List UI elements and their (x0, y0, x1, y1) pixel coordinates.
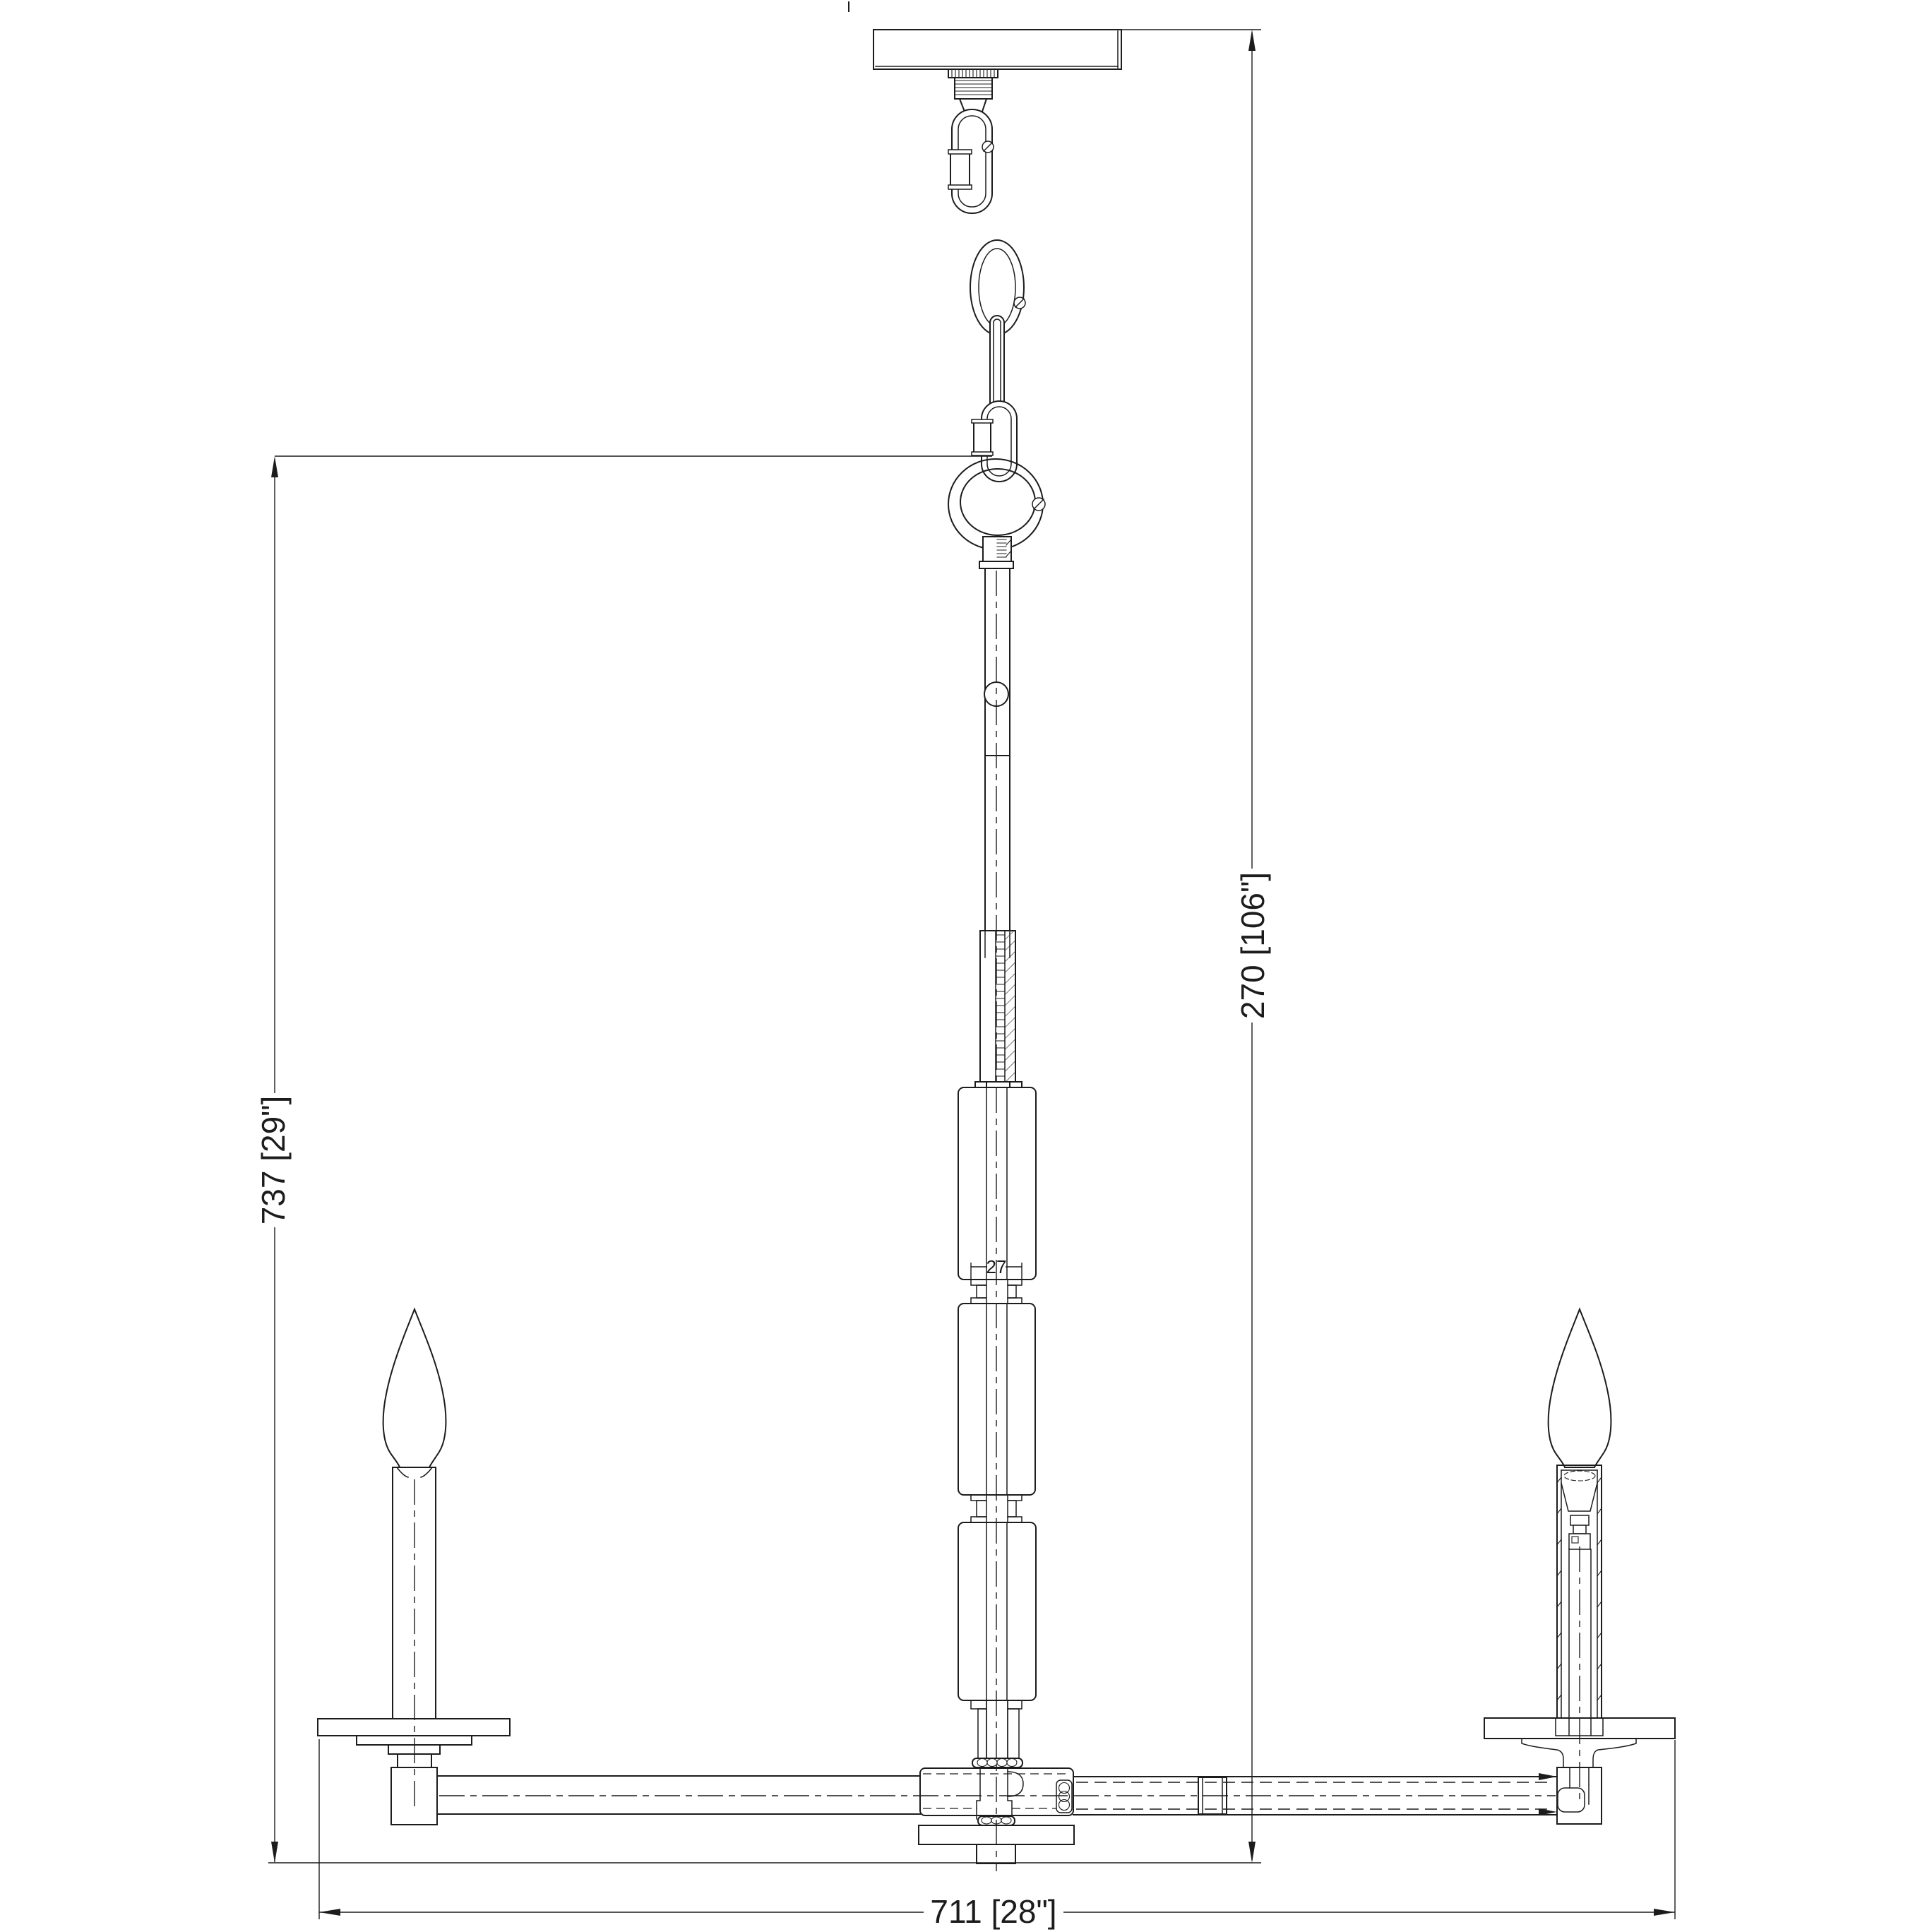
drawing-background (0, 0, 1932, 1932)
screw-head-icon (1014, 297, 1025, 309)
screw-head-icon (982, 141, 994, 153)
chandelier-dimension-drawing: 27 (0, 0, 1932, 1932)
ring-collar (979, 537, 1013, 568)
dimension-overall-height-label: 270 [106"] (1234, 872, 1271, 1019)
dimension-fixture-height-label: 737 [29"] (255, 1096, 292, 1225)
quick-link-upper (948, 109, 994, 213)
dimension-overall-width-label: 711 [28"] (930, 1893, 1056, 1930)
threaded-adapter (975, 931, 1022, 1087)
hub-arm-bushing (1056, 1780, 1072, 1813)
technical-drawing-page: { "drawing": { "background": "#ffffff", … (0, 0, 1932, 1932)
ceiling-canopy (873, 30, 1121, 69)
screw-head-icon (1032, 498, 1045, 511)
left-bobeche (318, 1719, 510, 1736)
